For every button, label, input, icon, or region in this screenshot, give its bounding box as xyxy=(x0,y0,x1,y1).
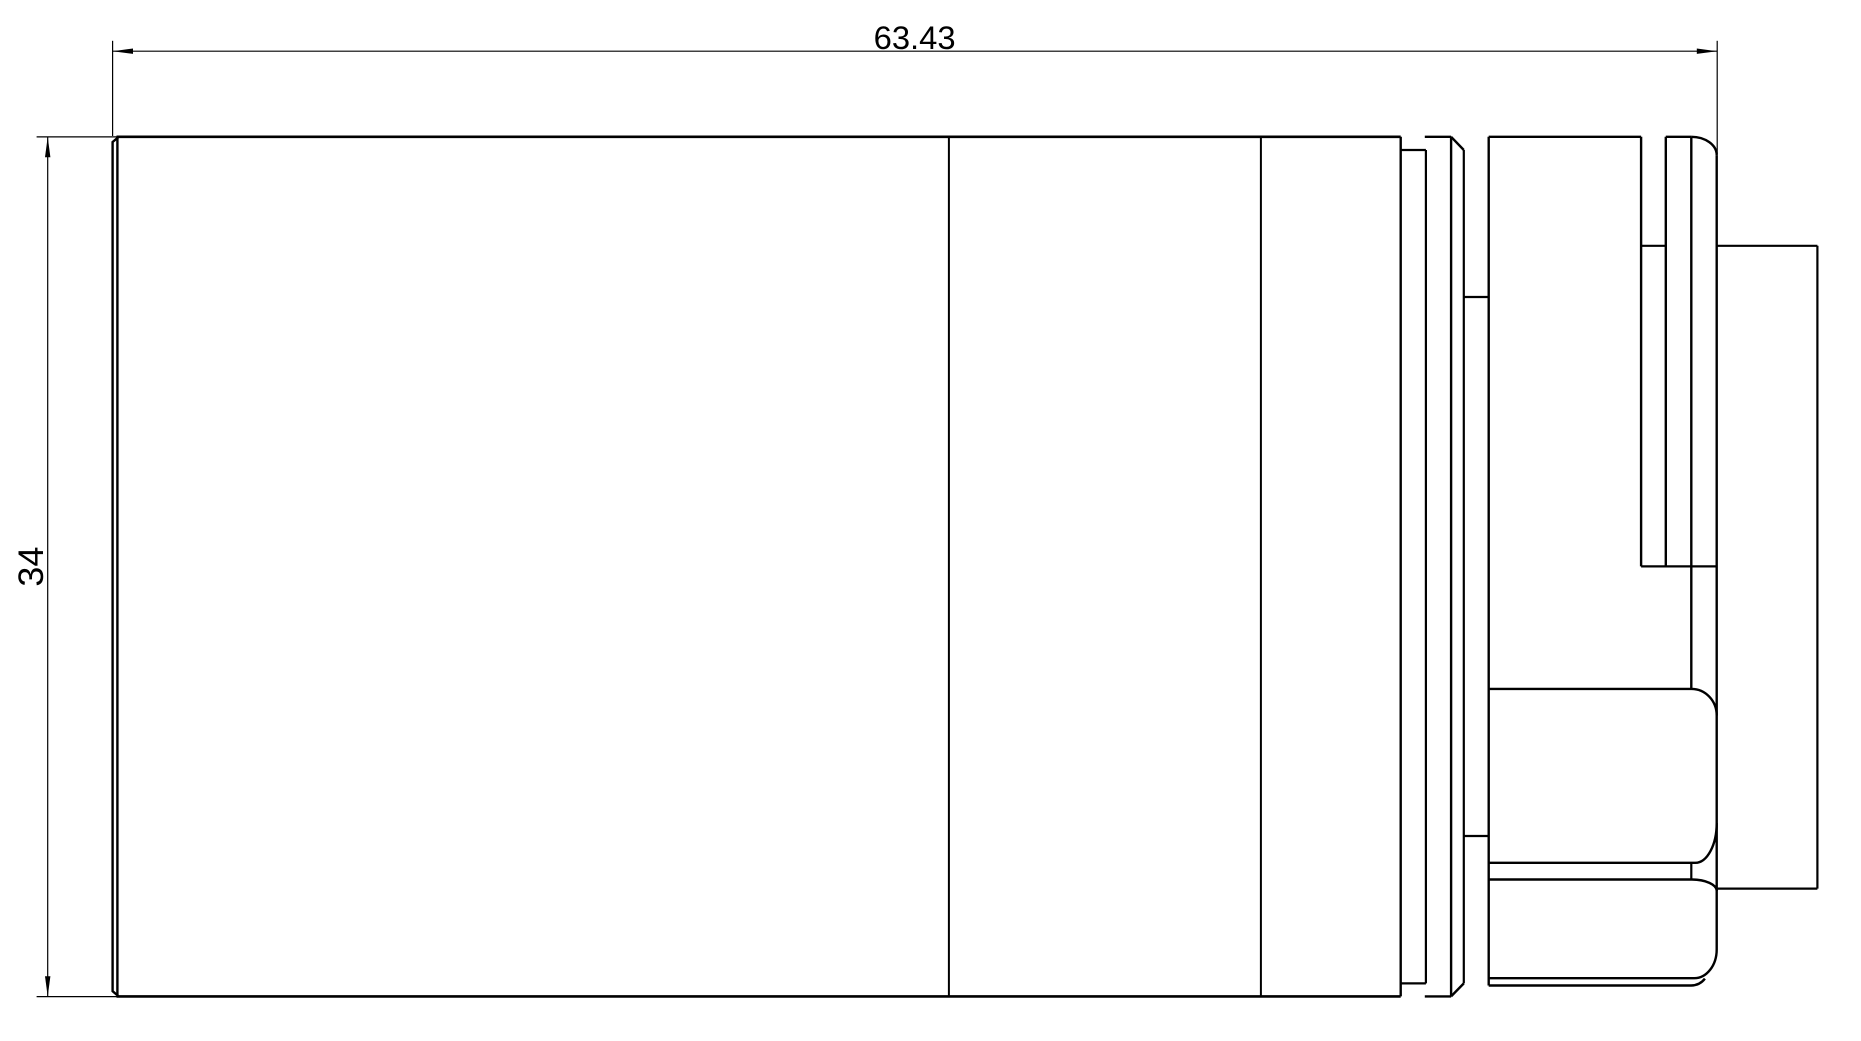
svg-text:63.43: 63.43 xyxy=(874,20,956,56)
svg-text:34: 34 xyxy=(12,547,51,587)
